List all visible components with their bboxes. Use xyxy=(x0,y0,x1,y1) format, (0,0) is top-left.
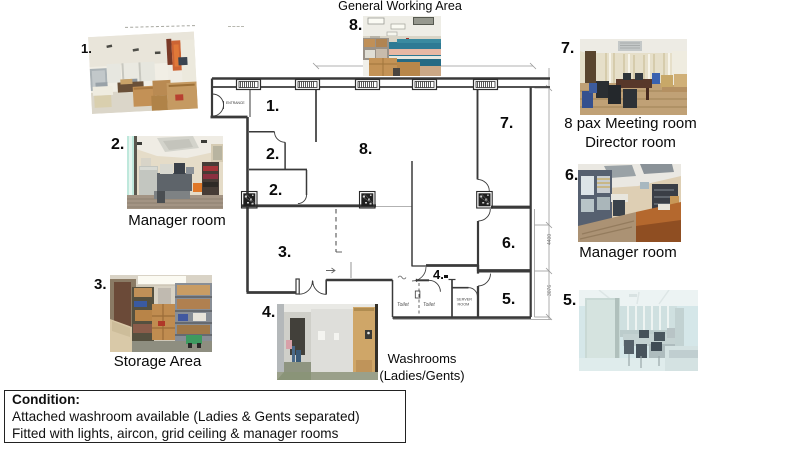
svg-text:4400: 4400 xyxy=(547,234,553,245)
svg-text:Toilet: Toilet xyxy=(423,302,435,308)
svg-text:3076: 3076 xyxy=(547,285,553,296)
svg-text:Toilet: Toilet xyxy=(397,302,409,308)
svg-text:SERVER: SERVER xyxy=(457,298,473,302)
svg-text:ROOM: ROOM xyxy=(458,303,470,307)
svg-text:ENTRANCE: ENTRANCE xyxy=(226,101,245,105)
